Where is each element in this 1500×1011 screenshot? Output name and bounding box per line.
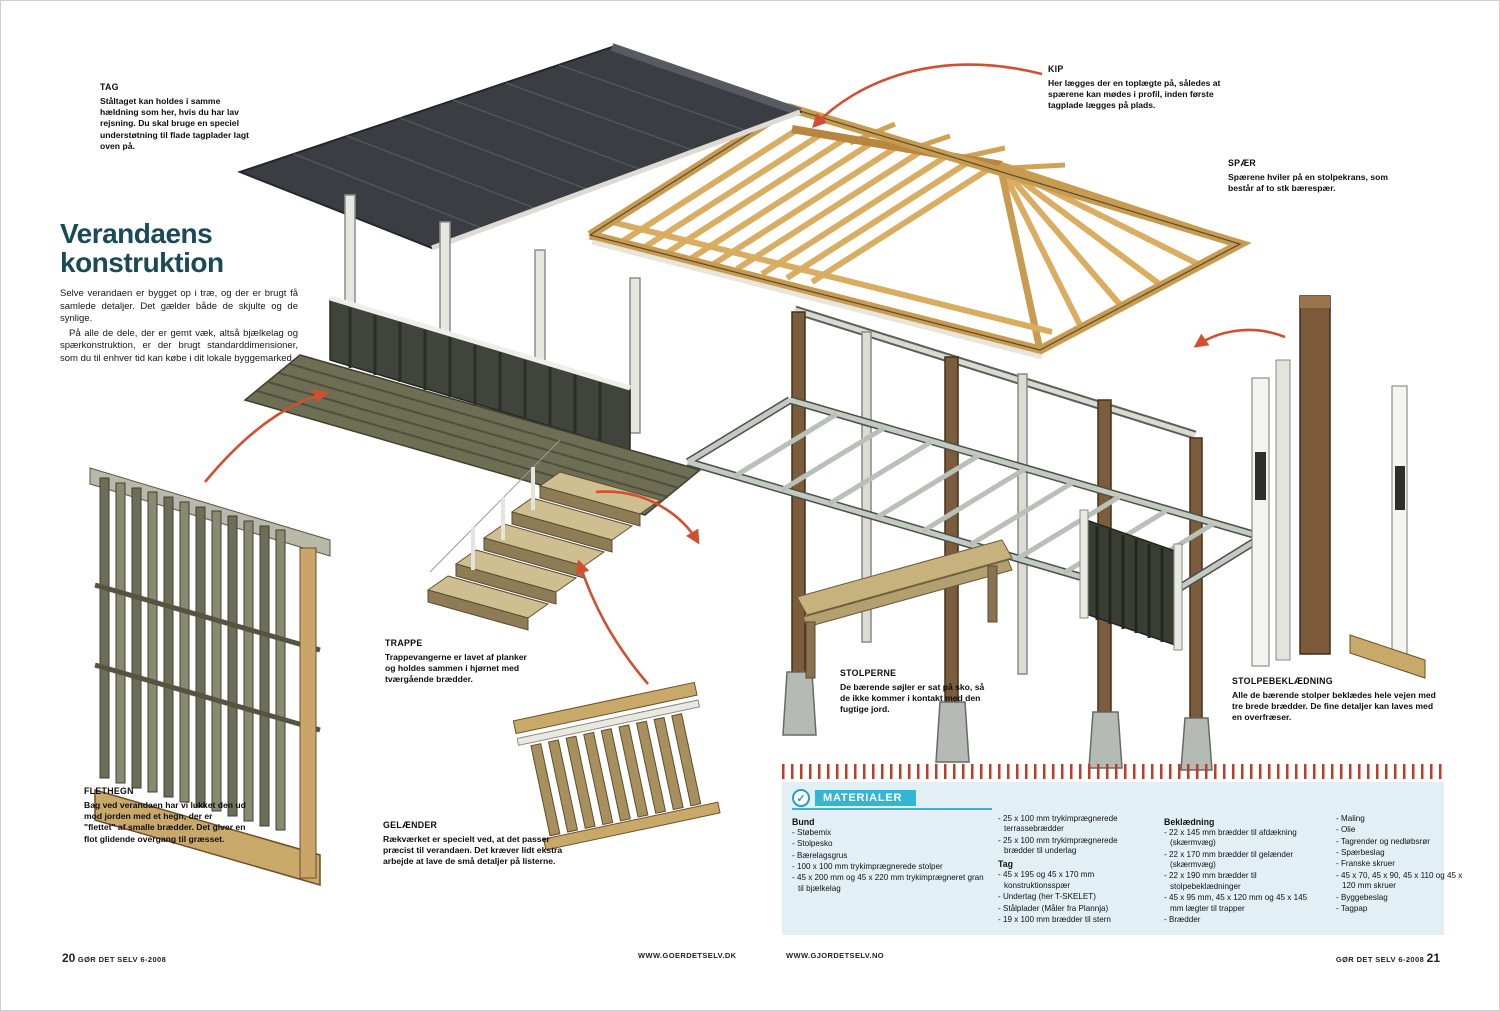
callout-stolpebeklaedning-heading: STOLPEBEKLÆDNING [1232, 676, 1444, 688]
callout-stolperne: STOLPERNE De bærende søjler er sat på sk… [840, 668, 990, 716]
callout-gelaender: GELÆNDER Rækværket er specielt ved, at d… [383, 820, 565, 868]
arrow-kip-to-ridge [814, 65, 1042, 126]
materials-header-label: MATERIALER [815, 790, 916, 806]
callout-gelaender-body: Rækværket er specielt ved, at det passer… [383, 834, 565, 868]
intro-paragraph-1: Selve verandaen er bygget op i træ, og d… [60, 288, 298, 326]
materials-item: Undertag (her T-SKELET) [998, 892, 1150, 902]
callout-kip: KIP Her lægges der en toplægte på, såled… [1048, 64, 1233, 112]
footer-left-magazine: GØR DET SELV 6-2008 [78, 955, 166, 964]
materials-item: 45 x 70, 45 x 90, 45 x 110 og 45 x 120 m… [1336, 871, 1464, 892]
footer-right-page-number: 21 [1427, 951, 1440, 965]
materials-item: 45 x 195 og 45 x 170 mm konstruktionsspæ… [998, 870, 1150, 891]
materials-section-heading: Bund [792, 817, 984, 827]
callout-kip-body: Her lægges der en toplægte på, således a… [1048, 78, 1233, 112]
page-title: Verandaens konstruktion [60, 220, 224, 277]
callout-stolpebeklaedning: STOLPEBEKLÆDNING Alle de bærende stolper… [1232, 676, 1444, 724]
magazine-spread: Verandaens konstruktion Selve verandaen … [0, 0, 1500, 1011]
footer-url-left: WWW.GOERDETSELV.DK [638, 951, 736, 960]
materials-item: Byggebeslag [1336, 893, 1464, 903]
materials-item: 22 x 190 mm brædder til stolpebeklædning… [1164, 871, 1322, 892]
post-cladding-detail [1252, 296, 1425, 678]
materials-columns: BundStøbemixStolpeskoBærelagsgrus100 x 1… [792, 814, 1434, 926]
callout-gelaender-heading: GELÆNDER [383, 820, 565, 832]
materials-section-heading: Beklædning [1164, 817, 1322, 827]
materials-item: Spærbeslag [1336, 848, 1464, 858]
callout-spaer-heading: SPÆR [1228, 158, 1393, 170]
materials-item: Maling [1336, 814, 1464, 824]
materials-item: Tagrender og nedløbsrør [1336, 837, 1464, 847]
materials-item: 22 x 145 mm brædder til afdækning (skærm… [1164, 828, 1322, 849]
callout-trappe: TRAPPE Trappevangerne er lavet af planke… [385, 638, 533, 686]
materials-item: 45 x 95 mm, 45 x 120 mm og 45 x 145 mm l… [1164, 893, 1322, 914]
callout-stolperne-body: De bærende søjler er sat på sko, så de i… [840, 682, 990, 716]
footer-left: 20 GØR DET SELV 6-2008 [62, 951, 166, 965]
callout-tag-body: Ståltaget kan holdes i samme hældning so… [100, 96, 260, 153]
materials-section-heading: Tag [998, 859, 1150, 869]
materials-column: 25 x 100 mm trykimprægnerede terrassebræ… [998, 814, 1150, 926]
materials-badge-icon: ✓ [792, 789, 810, 807]
materials-item: Tagpap [1336, 904, 1464, 914]
materials-item: 19 x 100 mm brædder til stern [998, 915, 1150, 925]
footer-right-magazine: GØR DET SELV 6-2008 [1336, 955, 1424, 964]
footer-url-right: WWW.GJORDETSELV.NO [786, 951, 884, 960]
callout-trappe-heading: TRAPPE [385, 638, 533, 650]
callout-stolperne-heading: STOLPERNE [840, 668, 990, 680]
materials-item: 45 x 200 mm og 45 x 220 mm trykimprægner… [792, 873, 984, 894]
callout-flethegn-body: Bag ved verandaen har vi lukket den ud m… [84, 800, 246, 845]
materials-item: Stålplader (Måler fra Plannja) [998, 904, 1150, 914]
materials-item: Brædder [1164, 915, 1322, 925]
callout-flethegn-heading: FLETHEGN [84, 786, 246, 798]
materials-item: Bærelagsgrus [792, 851, 984, 861]
page-title-line1: Verandaens [60, 220, 224, 249]
materials-item: 100 x 100 mm trykimprægnerede stolper [792, 862, 984, 872]
callout-kip-heading: KIP [1048, 64, 1233, 76]
callout-tag: TAG Ståltaget kan holdes i samme hældnin… [100, 82, 260, 152]
callout-spaer-body: Spærene hviler på en stolpekrans, som be… [1228, 172, 1393, 195]
materials-column: Beklædning22 x 145 mm brædder til afdækn… [1164, 814, 1322, 926]
callout-spaer: SPÆR Spærene hviler på en stolpekrans, s… [1228, 158, 1393, 194]
arrow-cladding-to-post [1196, 330, 1285, 346]
materials-box-stitch-border [782, 764, 1444, 779]
materials-item: 25 x 100 mm trykimprægnerede brædder til… [998, 836, 1150, 857]
intro-text: Selve verandaen er bygget op i træ, og d… [60, 288, 298, 367]
materials-item: Støbemix [792, 828, 984, 838]
arrow-railing-to-stairs [579, 562, 648, 684]
callout-stolpebeklaedning-body: Alle de bærende stolper beklædes hele ve… [1232, 690, 1444, 724]
footer-left-page-number: 20 [62, 951, 75, 965]
callout-tag-heading: TAG [100, 82, 260, 94]
callout-flethegn: FLETHEGN Bag ved verandaen har vi lukket… [84, 786, 246, 845]
materials-item: 22 x 170 mm brædder til gelænder (skærmv… [1164, 850, 1322, 871]
materials-column: MalingOlieTagrender og nedløbsrørSpærbes… [1336, 814, 1464, 926]
footer-right: GØR DET SELV 6-2008 21 [1285, 951, 1440, 965]
page-title-line2: konstruktion [60, 249, 224, 278]
materials-item: Franske skruer [1336, 859, 1464, 869]
materials-item: 25 x 100 mm trykimprægnerede terrassebræ… [998, 814, 1150, 835]
materials-item: Stolpesko [792, 839, 984, 849]
materials-column: BundStøbemixStolpeskoBærelagsgrus100 x 1… [792, 814, 984, 926]
bench [797, 540, 1012, 678]
callout-trappe-body: Trappevangerne er lavet af planker og ho… [385, 652, 533, 686]
intro-paragraph-2: På alle de dele, der er gemt væk, altså … [60, 328, 298, 366]
materials-header: ✓ MATERIALER [792, 788, 992, 810]
materials-box: ✓ MATERIALER BundStøbemixStolpeskoBærela… [782, 782, 1444, 935]
materials-item: Olie [1336, 825, 1464, 835]
